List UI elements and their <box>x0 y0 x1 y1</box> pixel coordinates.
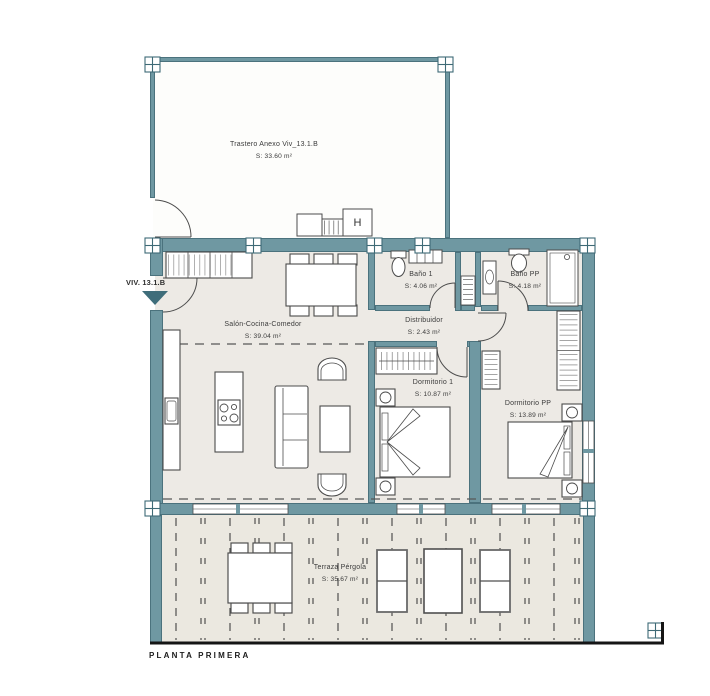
bathpp-wall-bottom-west <box>481 305 498 311</box>
room-label-dormitorio1: Dormitorio 1 S: 10.87 m² <box>413 377 454 400</box>
room-area: S: 2.43 m² <box>405 327 443 338</box>
apartment-wall-left-upper <box>150 238 163 276</box>
room-name: Salón-Cocina-Comedor <box>224 319 301 331</box>
room-label-trastero: Trastero Anexo Viv_13.1.B S: 33.60 m² <box>230 139 318 162</box>
floor-plan: Trastero Anexo Viv_13.1.B S: 33.60 m² Sa… <box>0 0 710 696</box>
room-label-bano1: Baño 1 S: 4.06 m² <box>405 269 437 292</box>
terrace-floor <box>156 515 588 643</box>
bath1-wall-bottom <box>375 305 430 311</box>
room-name: Dormitorio 1 <box>413 377 454 389</box>
bathpp-wall-bottom-east <box>528 305 582 311</box>
room-area: S: 4.18 m² <box>509 281 541 292</box>
terrace-wall-right <box>583 515 595 643</box>
apartment-wall-bottom <box>150 503 595 515</box>
elevator-label: H <box>343 209 372 236</box>
bathpp-wall-left <box>475 252 481 307</box>
bedrooms-divider-wall <box>469 341 481 503</box>
room-area: S: 39.04 m² <box>224 331 301 342</box>
room-area: S: 33.60 m² <box>230 151 318 162</box>
plan-title: PLANTA PRIMERA <box>149 651 250 660</box>
apartment-wall-right <box>582 238 595 515</box>
room-name: Terraza Pérgola <box>314 562 366 574</box>
bath1-wall-right <box>455 252 461 311</box>
room-label-dormitoriopp: Dormitorio PP S: 13.89 m² <box>505 398 551 421</box>
room-name: Trastero Anexo Viv_13.1.B <box>230 139 318 151</box>
room-area: S: 4.06 m² <box>405 281 437 292</box>
room-label-salon: Salón-Cocina-Comedor S: 39.04 m² <box>224 319 301 342</box>
trastero-wall-left <box>150 57 155 198</box>
bedroom1-wall-top <box>375 341 437 347</box>
room-name: Baño 1 <box>405 269 437 281</box>
apartment-wall-top <box>150 238 595 252</box>
bath1-wall-left <box>368 252 375 310</box>
room-label-distribuidor: Distribuidor S: 2.43 m² <box>405 315 443 338</box>
room-label-banopp: Baño PP S: 4.18 m² <box>509 269 541 292</box>
trastero-wall-right <box>445 57 450 238</box>
bedroom1-wall-left <box>368 341 375 503</box>
trastero-wall-top <box>150 57 450 62</box>
room-area: S: 10.87 m² <box>413 389 454 400</box>
room-area: S: 13.89 m² <box>505 410 551 421</box>
apartment-wall-left-lower <box>150 310 163 515</box>
room-name: Dormitorio PP <box>505 398 551 410</box>
shaft-wall-bottom <box>461 305 475 311</box>
room-area: S: 35.67 m² <box>314 574 366 585</box>
room-name: Baño PP <box>509 269 541 281</box>
unit-label: VIV. 13.1.B <box>126 278 165 287</box>
room-label-terraza: Terraza Pérgola S: 35.67 m² <box>314 562 366 585</box>
room-name: Distribuidor <box>405 315 443 327</box>
terrace-wall-left <box>150 515 162 643</box>
